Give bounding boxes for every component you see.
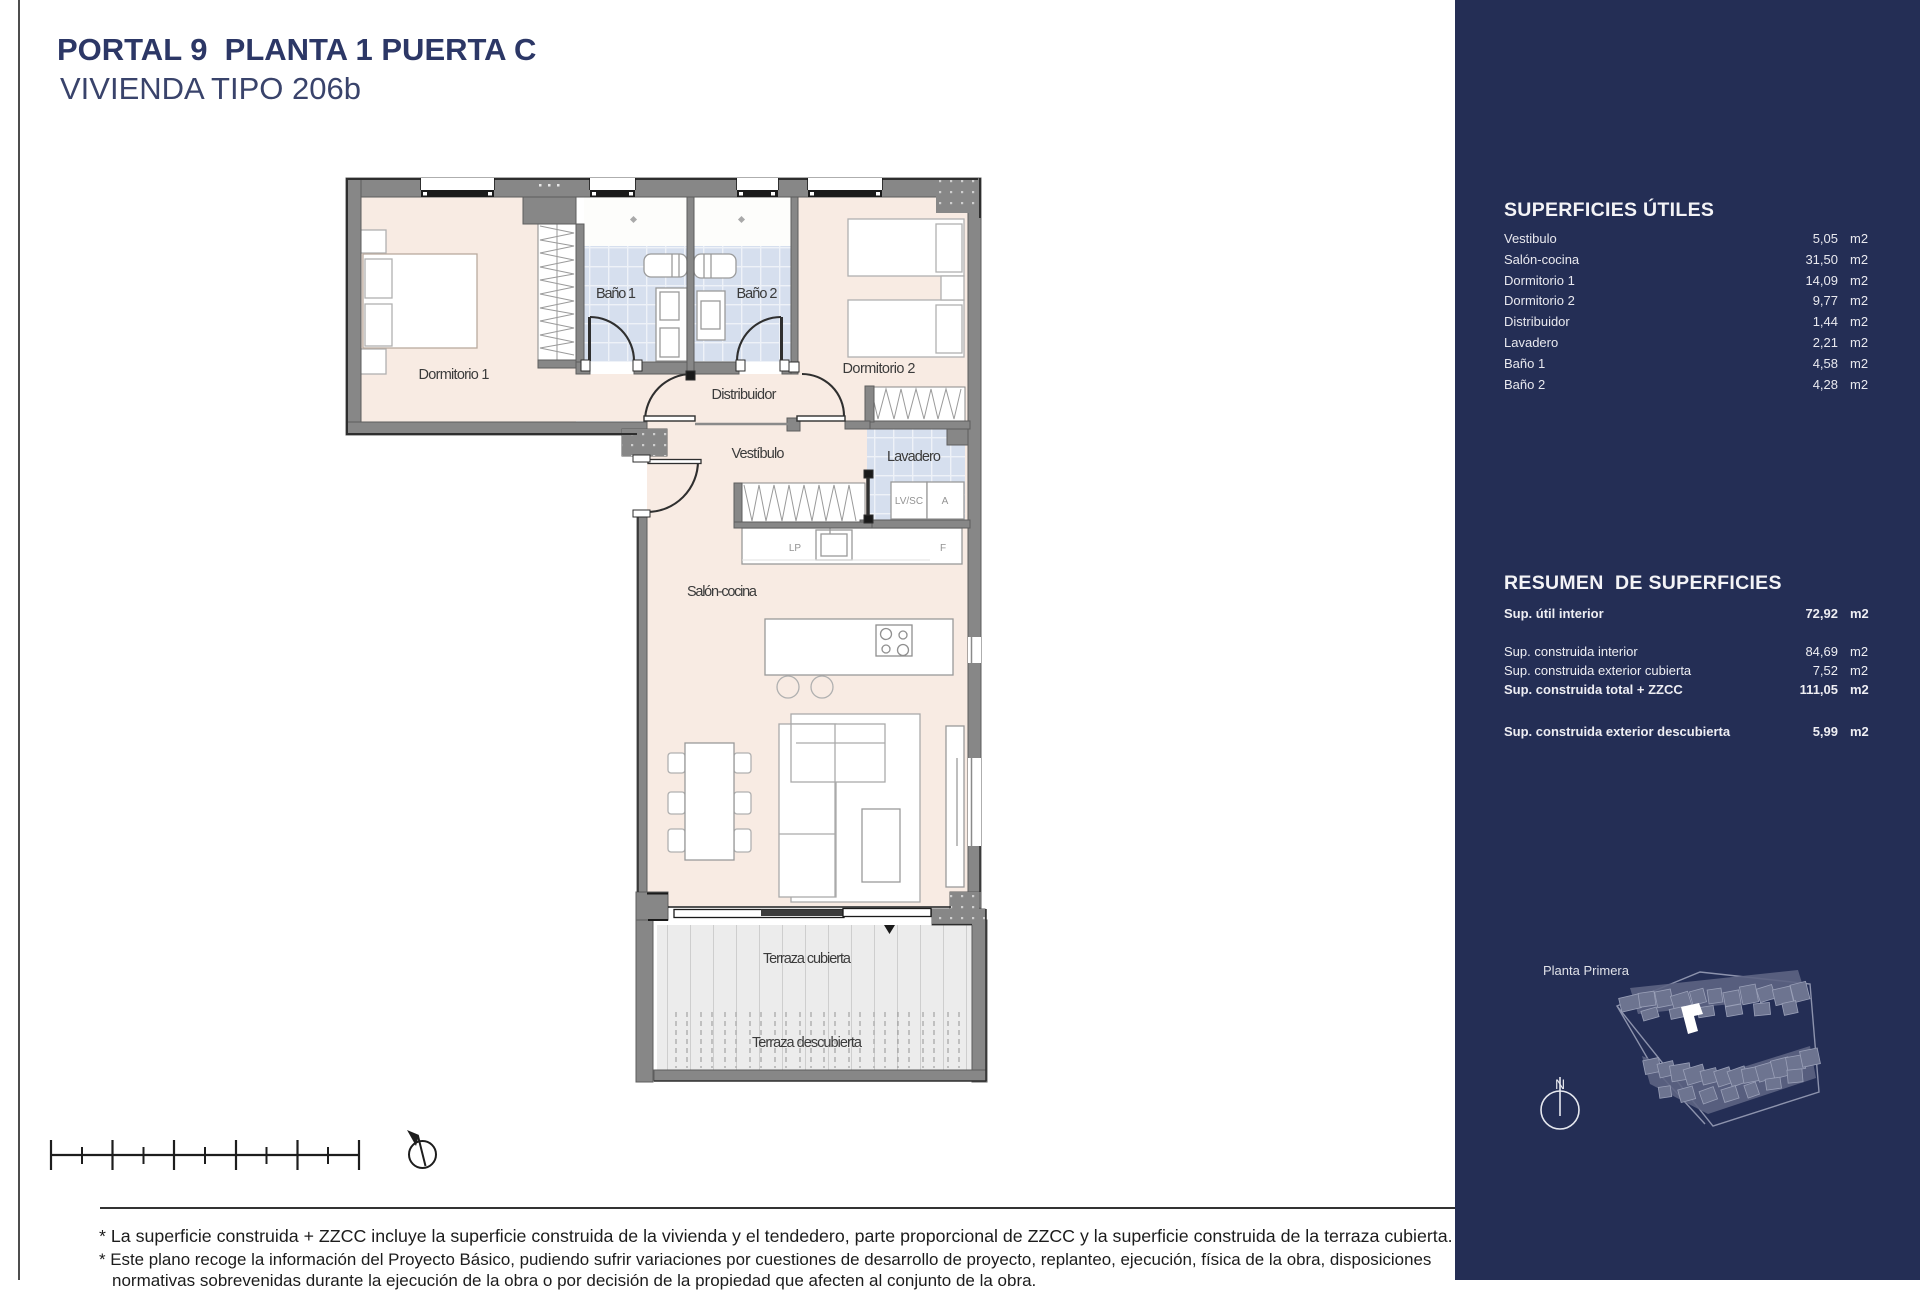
svg-text:F: F — [940, 543, 946, 554]
svg-text:LV/SC: LV/SC — [895, 496, 923, 507]
svg-text:Terraza cubierta: Terraza cubierta — [763, 951, 852, 967]
svg-text:Terraza descubierta: Terraza descubierta — [752, 1035, 863, 1051]
svg-text:LP: LP — [789, 543, 802, 554]
svg-text:Salón-cocina: Salón-cocina — [687, 584, 758, 600]
svg-text:Distribuidor: Distribuidor — [712, 387, 777, 403]
svg-text:Dormitorio 1: Dormitorio 1 — [419, 367, 490, 383]
svg-text:N: N — [1555, 1076, 1565, 1092]
svg-text:A: A — [942, 496, 949, 507]
svg-text:Lavadero: Lavadero — [887, 449, 941, 465]
svg-text:Vestíbulo: Vestíbulo — [732, 446, 785, 462]
svg-text:Baño 1: Baño 1 — [596, 286, 636, 302]
svg-text:Dormitorio 2: Dormitorio 2 — [843, 361, 916, 377]
svg-text:Baño 2: Baño 2 — [737, 286, 778, 302]
